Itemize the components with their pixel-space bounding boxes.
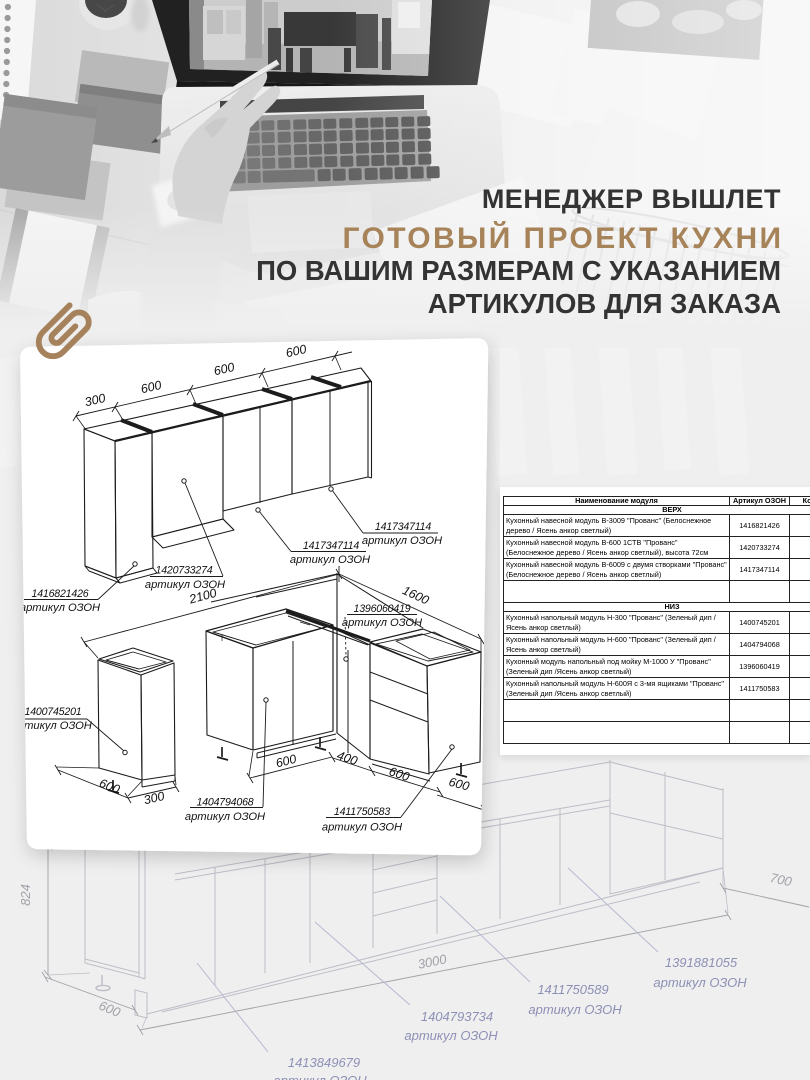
svg-text:артикул ОЗОН: артикул ОЗОН [273,1073,367,1080]
svg-text:1400745201: 1400745201 [25,706,82,718]
svg-text:700: 700 [769,870,794,890]
svg-text:1417347114: 1417347114 [303,540,359,552]
svg-text:1404794068: 1404794068 [197,797,254,809]
svg-text:600: 600 [97,998,123,1020]
svg-text:1416821426: 1416821426 [32,588,89,600]
svg-text:артикул ОЗОН: артикул ОЗОН [322,822,403,834]
svg-text:1420733274: 1420733274 [156,565,213,577]
svg-text:артикул ОЗОН: артикул ОЗОН [290,554,371,566]
svg-text:1404793734: 1404793734 [421,1009,493,1024]
svg-text:1396060419: 1396060419 [354,603,411,615]
svg-text:артикул ОЗОН: артикул ОЗОН [528,1002,622,1017]
svg-text:1413849679: 1413849679 [288,1055,360,1070]
svg-text:артикул ОЗОН: артикул ОЗОН [185,811,266,823]
svg-text:1417347114: 1417347114 [375,521,431,533]
svg-text:824: 824 [18,884,33,906]
svg-text:1391881055: 1391881055 [665,955,738,970]
svg-text:3000: 3000 [416,951,448,972]
svg-text:артикул ОЗОН: артикул ОЗОН [653,975,747,990]
svg-text:артикул ОЗОН: артикул ОЗОН [342,617,423,629]
svg-text:1411750583: 1411750583 [334,806,390,818]
svg-text:артикул ОЗОН: артикул ОЗОН [20,602,101,614]
svg-text:тикул ОЗОН: тикул ОЗОН [24,720,93,732]
svg-text:артикул ОЗОН: артикул ОЗОН [404,1028,498,1043]
svg-text:артикул ОЗОН: артикул ОЗОН [362,535,443,547]
svg-text:1411750589: 1411750589 [537,982,608,997]
